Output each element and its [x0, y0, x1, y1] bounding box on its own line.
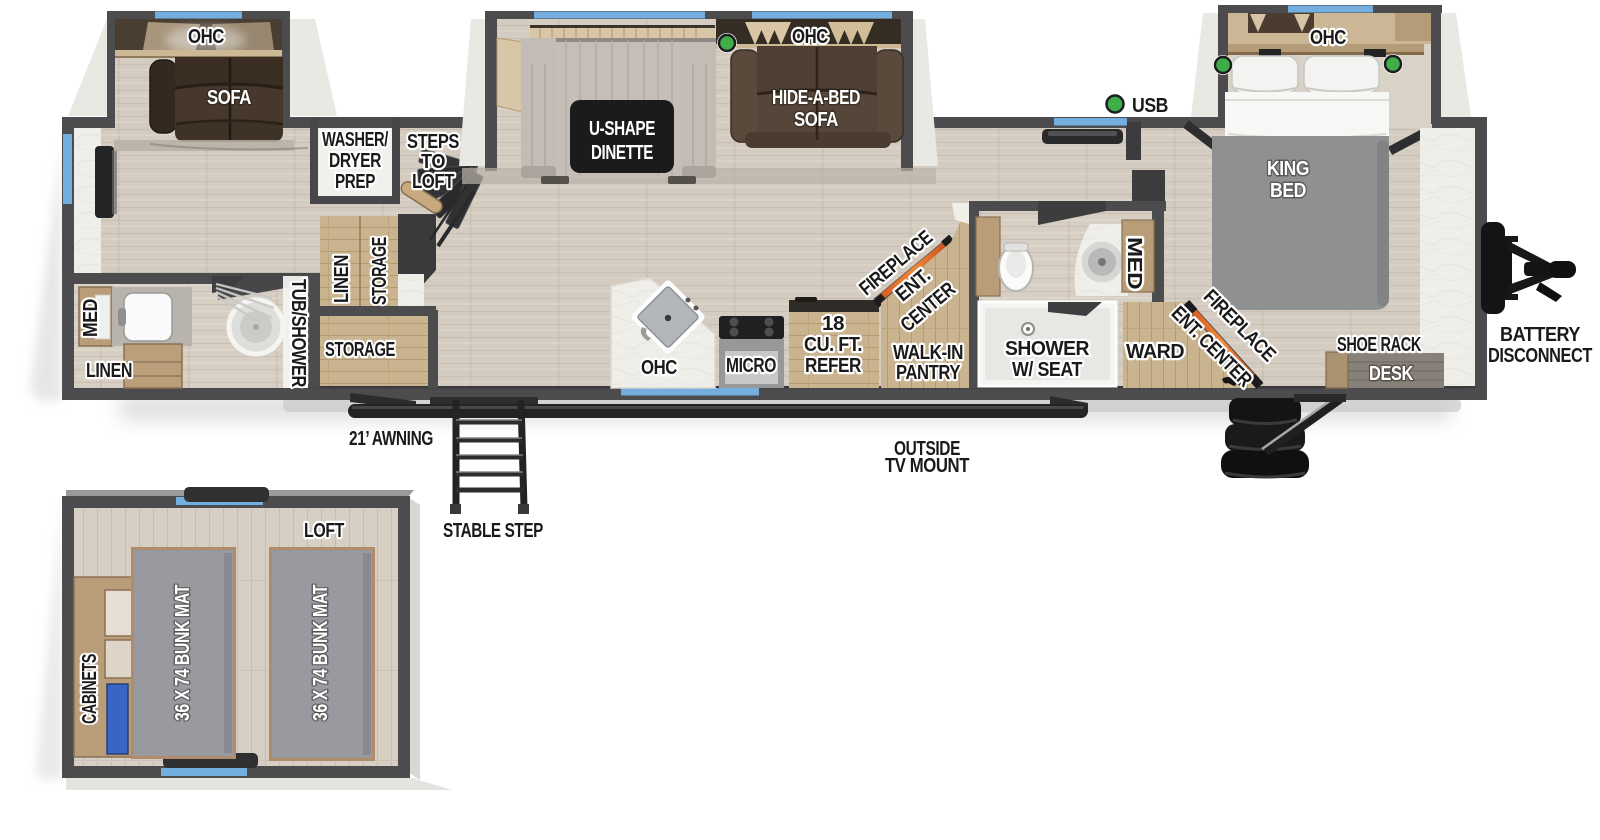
- svg-text:WALK-IN: WALK-IN: [893, 342, 963, 364]
- svg-text:OHC: OHC: [792, 26, 828, 48]
- svg-text:SOFA: SOFA: [207, 87, 251, 109]
- svg-text:DRYER: DRYER: [329, 150, 382, 172]
- svg-text:18: 18: [822, 313, 844, 335]
- svg-text:USB: USB: [1132, 95, 1168, 117]
- svg-text:BATTERY: BATTERY: [1500, 324, 1581, 346]
- svg-text:W/ SEAT: W/ SEAT: [1012, 359, 1082, 381]
- svg-text:STORAGE: STORAGE: [369, 237, 391, 305]
- svg-text:BED: BED: [1270, 180, 1306, 202]
- svg-text:OHC: OHC: [1310, 27, 1346, 49]
- svg-text:SHOE RACK: SHOE RACK: [1337, 334, 1422, 356]
- svg-text:OHC: OHC: [188, 26, 224, 48]
- svg-text:LINEN: LINEN: [331, 255, 353, 303]
- svg-text:LINEN: LINEN: [86, 360, 132, 382]
- svg-text:STEPS: STEPS: [407, 131, 459, 153]
- svg-text:DINETTE: DINETTE: [591, 142, 653, 164]
- svg-text:21’ AWNING: 21’ AWNING: [349, 428, 433, 450]
- svg-text:DESK: DESK: [1369, 363, 1414, 385]
- svg-text:TO: TO: [421, 151, 445, 173]
- svg-text:TV MOUNT: TV MOUNT: [885, 455, 969, 477]
- svg-text:U-SHAPE: U-SHAPE: [589, 118, 655, 140]
- svg-text:MICRO: MICRO: [726, 355, 776, 377]
- svg-text:LOFT: LOFT: [304, 520, 344, 542]
- svg-text:SHOWER: SHOWER: [1005, 338, 1090, 360]
- svg-text:OHC: OHC: [641, 357, 677, 379]
- svg-text:HIDE-A-BED: HIDE-A-BED: [772, 87, 860, 109]
- svg-text:MED: MED: [1123, 237, 1145, 289]
- svg-text:PREP: PREP: [335, 171, 375, 193]
- svg-text:STORAGE: STORAGE: [325, 339, 395, 361]
- svg-text:WASHER/: WASHER/: [322, 129, 389, 151]
- svg-text:REFER: REFER: [805, 355, 862, 377]
- svg-text:DISCONNECT: DISCONNECT: [1488, 345, 1592, 367]
- svg-text:PANTRY: PANTRY: [896, 362, 961, 384]
- svg-text:SOFA: SOFA: [794, 109, 838, 131]
- svg-text:MED: MED: [80, 299, 102, 337]
- svg-text:CABINETS: CABINETS: [79, 654, 101, 724]
- svg-text:TUB/SHOWER: TUB/SHOWER: [287, 279, 309, 388]
- svg-text:STABLE STEP: STABLE STEP: [443, 520, 543, 542]
- svg-text:LOFT: LOFT: [412, 171, 454, 193]
- svg-text:36 X 74 BUNK MAT: 36 X 74 BUNK MAT: [310, 585, 332, 721]
- svg-text:CU. FT.: CU. FT.: [804, 334, 862, 356]
- svg-text:WARD: WARD: [1126, 341, 1184, 363]
- svg-text:36 X 74 BUNK MAT: 36 X 74 BUNK MAT: [172, 585, 194, 721]
- svg-text:KING: KING: [1267, 158, 1309, 180]
